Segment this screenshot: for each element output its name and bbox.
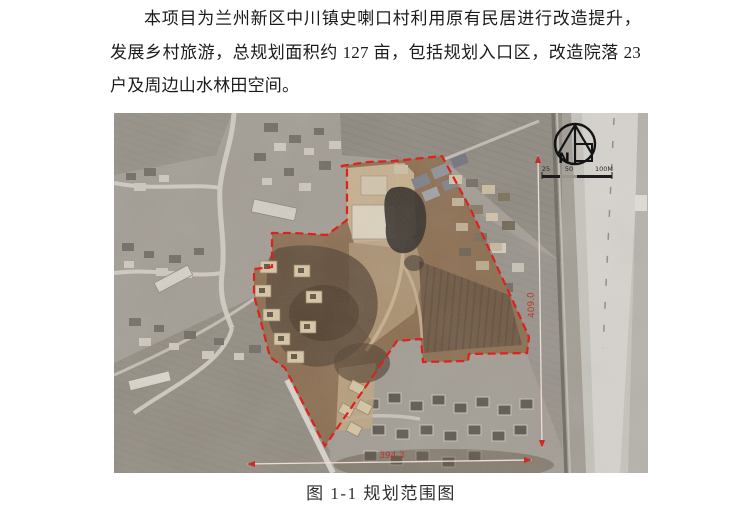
paragraph-line: 户及周边山水林田空间。 <box>110 69 641 103</box>
paragraph-line: 本项目为兰州新区中川镇史喇口村利用原有民居进行改造提升， <box>110 2 641 36</box>
satellite-image: 409.0 394.3 N <box>114 113 648 473</box>
horizontal-dimension-label: 394.3 <box>379 451 405 461</box>
planning-map-figure: 409.0 394.3 N <box>114 113 648 473</box>
scale-tick: 25 <box>542 165 550 173</box>
paragraph-line: 发展乡村旅游，总规划面积约 127 亩，包括规划入口区，改造院落 23 <box>110 36 641 70</box>
document-page: 本项目为兰州新区中川镇史喇口村利用原有民居进行改造提升， 发展乡村旅游，总规划面… <box>0 0 750 519</box>
figure-caption: 图 1-1 规划范围图 <box>114 479 648 504</box>
scale-tick: 100M <box>595 165 613 173</box>
scale-tick: 50 <box>565 165 573 173</box>
body-paragraph: 本项目为兰州新区中川镇史喇口村利用原有民居进行改造提升， 发展乡村旅游，总规划面… <box>110 2 641 103</box>
vertical-dimension-label: 409.0 <box>527 292 538 318</box>
